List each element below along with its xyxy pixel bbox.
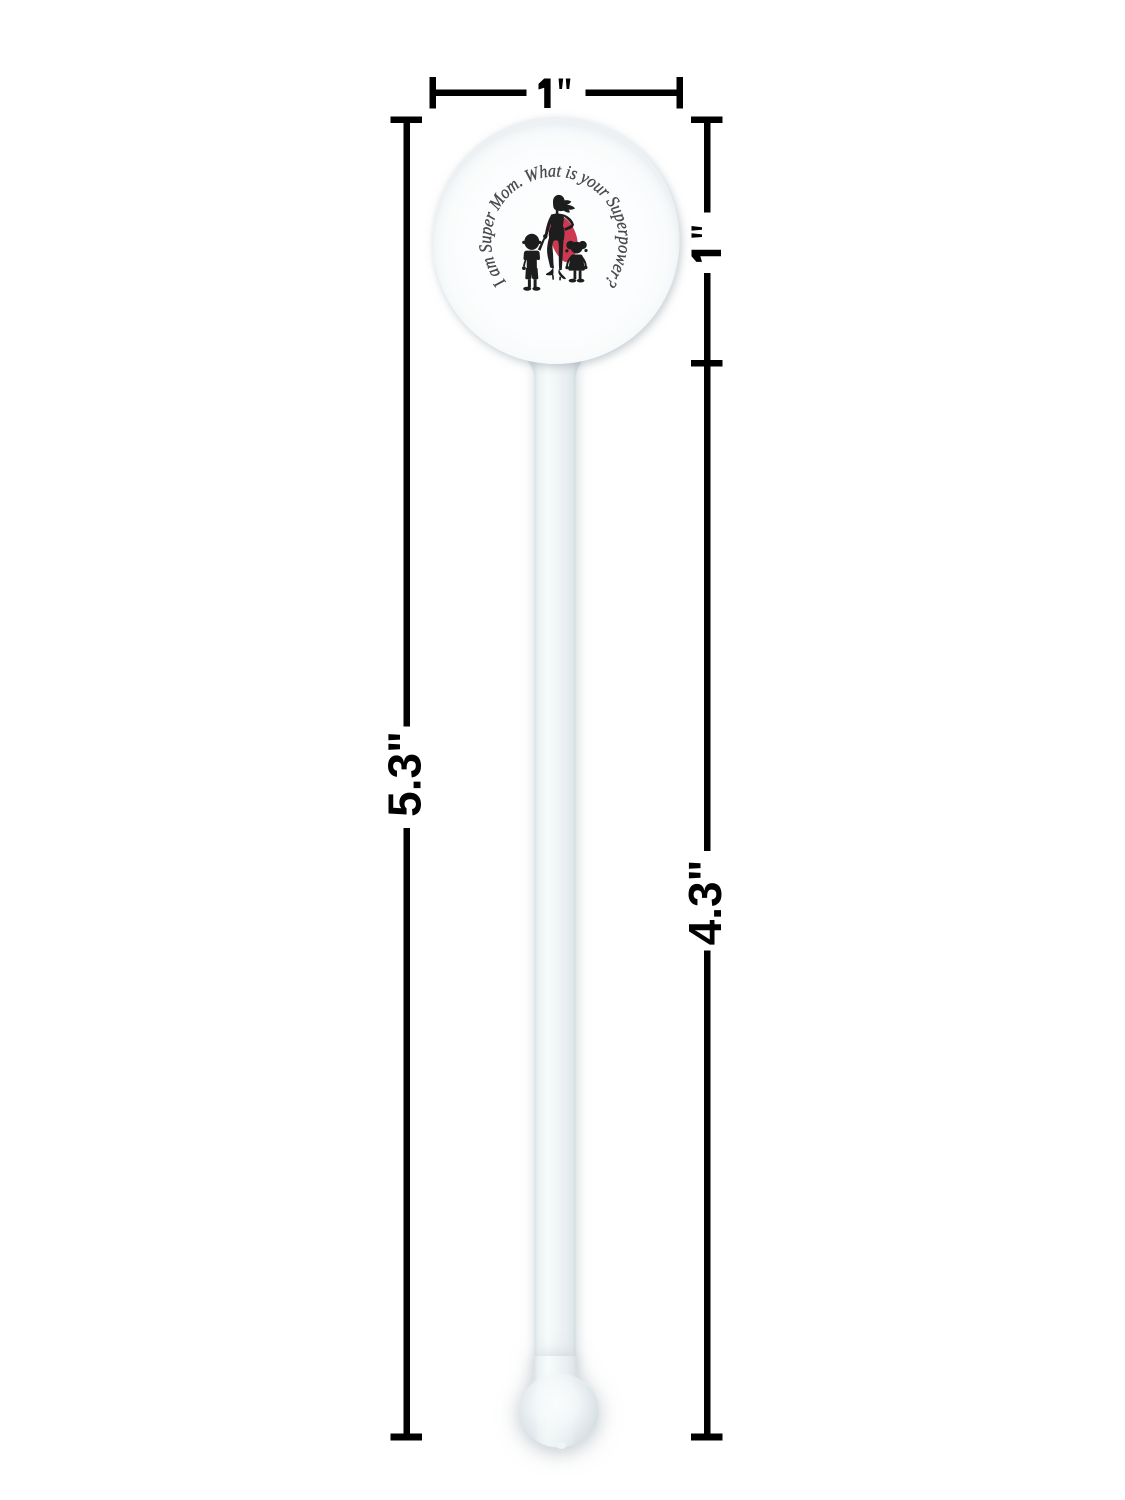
svg-text:4.3": 4.3" [679,860,731,946]
svg-text:5.3": 5.3" [379,731,431,817]
